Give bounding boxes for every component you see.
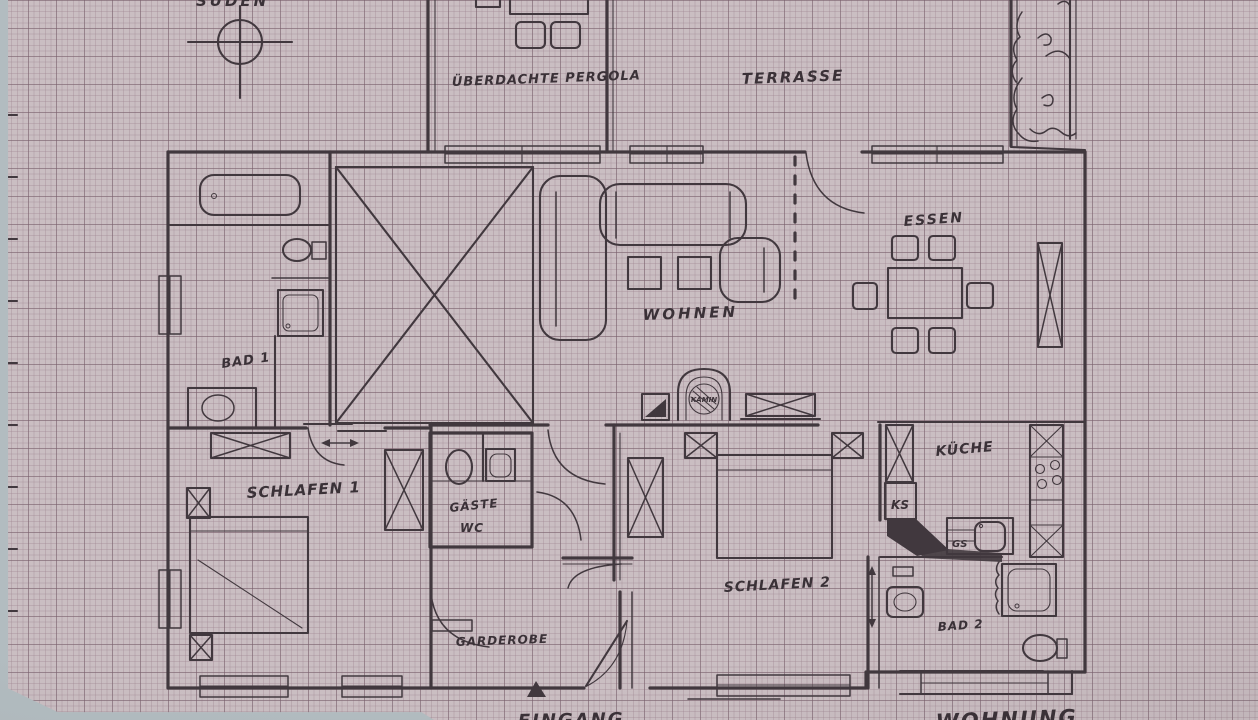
- bathtub: [200, 175, 300, 215]
- wardrobe: [628, 458, 663, 537]
- label-schlafen1: SCHLAFEN 1: [246, 478, 361, 502]
- pergola-chair: [551, 22, 580, 48]
- wardrobe: [385, 450, 423, 530]
- window: [717, 675, 850, 696]
- toilet: [1023, 635, 1057, 661]
- bad1: BAD 1: [188, 175, 328, 428]
- shrubs: [1012, 1, 1076, 141]
- floor-plan-photo: SÜDEN ÜBERDACHTE PERGOLA: [0, 0, 1258, 720]
- gaeste-wc: GÄSTE WC: [430, 433, 532, 547]
- chair: [853, 283, 877, 309]
- label-terrasse: TERRASSE: [742, 66, 845, 88]
- side-table: [678, 257, 711, 289]
- toilet: [446, 450, 472, 484]
- washbasin: [887, 587, 923, 617]
- nightstand: [832, 433, 863, 458]
- porch-steps: [900, 671, 1072, 694]
- washbasin-counter: [188, 388, 256, 428]
- stove-burners: [1036, 461, 1062, 489]
- paper-edge-ticks: [3, 115, 17, 611]
- door-arc: [548, 430, 605, 484]
- nightstand: [685, 433, 717, 458]
- sliding-door-schlafen1: [304, 424, 386, 447]
- door-arc: [308, 428, 344, 465]
- terrasse: TERRASSE: [742, 0, 1085, 150]
- bed: [190, 517, 308, 633]
- door-arc: [806, 153, 864, 213]
- interior-walls: [168, 152, 1085, 688]
- toilet: [283, 239, 311, 261]
- wardrobe: [211, 433, 290, 458]
- label-eingang: EINGANG: [518, 709, 625, 720]
- label-sueden: SÜDEN: [196, 0, 269, 10]
- window: [159, 276, 181, 334]
- window: [445, 146, 600, 163]
- label-schlafen2: SCHLAFEN 2: [723, 574, 831, 596]
- label-kueche: KÜCHE: [935, 437, 995, 460]
- chair: [892, 328, 918, 353]
- schlafen2: SCHLAFEN 2: [628, 433, 863, 596]
- window: [200, 676, 288, 697]
- pergola: ÜBERDACHTE PERGOLA: [428, 0, 641, 152]
- label-garderobe: GARDEROBE: [456, 632, 549, 649]
- sofa-horizontal: [600, 184, 746, 245]
- closet-block: [336, 167, 533, 423]
- window: [159, 570, 181, 628]
- window: [342, 676, 402, 697]
- tall-cupboard: [886, 425, 913, 482]
- label-ks: KS: [891, 498, 909, 512]
- label-bad2: BAD 2: [937, 617, 984, 634]
- label-wc: WC: [460, 521, 484, 535]
- dining-table: [888, 268, 962, 318]
- wardrobe: [190, 635, 212, 660]
- label-bad1: BAD 1: [220, 350, 271, 372]
- label-gs: GS: [952, 539, 967, 550]
- label-gaeste: GÄSTE: [449, 495, 499, 515]
- label-wohnen: WOHNEN: [643, 303, 739, 324]
- schlafen1: SCHLAFEN 1: [187, 433, 423, 660]
- windows: [159, 146, 1003, 697]
- sofa-vertical: [540, 176, 606, 340]
- graph-paper: SÜDEN ÜBERDACHTE PERGOLA: [0, 0, 1258, 720]
- chair: [929, 328, 955, 353]
- label-kamin: KAMIN: [691, 396, 717, 404]
- coat-rack: [432, 620, 472, 631]
- chair: [967, 283, 993, 308]
- window: [630, 146, 703, 163]
- window: [872, 146, 1003, 163]
- washbasin: [202, 395, 234, 421]
- pergola-chair: [516, 22, 545, 48]
- kamin: KAMIN: [642, 369, 820, 420]
- kueche: KS GS KÜCHE: [885, 425, 1063, 562]
- label-essen: ESSEN: [903, 210, 964, 230]
- label-wohnung: WOHNUNG: [935, 705, 1078, 720]
- cabinet: [1038, 243, 1062, 347]
- side-table: [628, 257, 661, 289]
- exterior-walls: [168, 152, 1085, 688]
- kitchen-unit-column: [1030, 425, 1063, 557]
- armchair: [720, 238, 780, 302]
- chair: [892, 236, 918, 260]
- shower-curtain: [996, 562, 1000, 614]
- wardrobe: [187, 488, 210, 518]
- compass-icon: [188, 6, 292, 98]
- wohnen: WOHNEN: [540, 157, 795, 340]
- essen: ESSEN: [853, 210, 1062, 353]
- chair: [929, 236, 955, 260]
- garderobe-eingang: GARDEROBE EINGANG: [432, 620, 780, 720]
- bad2: BAD 2: [887, 562, 1067, 661]
- pergola-table: [510, 0, 588, 14]
- floor-plan-drawing: SÜDEN ÜBERDACHTE PERGOLA: [0, 0, 1258, 720]
- door-arc: [537, 492, 581, 540]
